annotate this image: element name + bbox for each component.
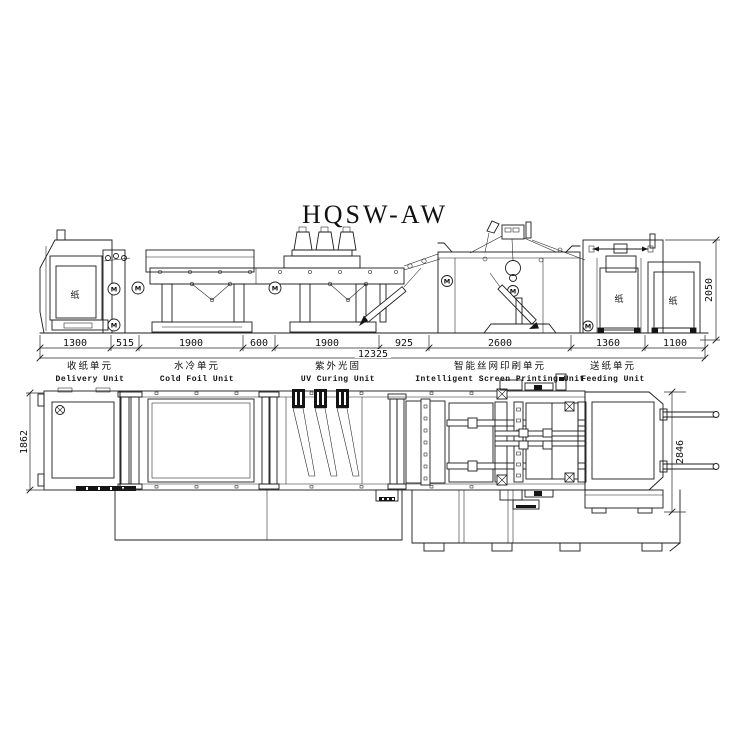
gripper-chain-rail	[388, 394, 406, 489]
motor-label: M	[135, 285, 141, 293]
motor-label: M	[111, 322, 117, 330]
unit-label-zh-cold-foil: 水冷单元	[174, 360, 220, 372]
squeegee-head	[487, 221, 499, 233]
uv-curing-unit-plan	[286, 389, 362, 484]
motor-label: M	[585, 323, 591, 331]
dim-515: 515	[116, 338, 134, 349]
impression-cylinder	[506, 261, 521, 276]
cold-foil-unit-plan	[148, 399, 254, 482]
feeding-unit-plan	[585, 392, 719, 513]
unit-label-en-feeding: Feeding Unit	[581, 375, 645, 384]
machine-diagram-page: HQSW-AW 纸 M M M	[0, 0, 750, 750]
delivery-unit-side: 纸 M M	[40, 230, 130, 333]
uv-lamp-cartridge	[336, 389, 349, 408]
unit-label-zh-printing: 智能丝网印刷单元	[454, 360, 546, 372]
feeder-frame	[583, 240, 663, 333]
dim-height: 2050	[704, 278, 715, 302]
motor-label: M	[272, 285, 278, 293]
paper-glyph: 纸	[70, 289, 79, 301]
gripper-chain-rail	[118, 392, 142, 489]
uv-lamp-cartridge	[292, 389, 305, 408]
unit-label-zh-delivery: 收纸单元	[67, 360, 113, 372]
dim-1360: 1360	[596, 338, 620, 349]
screen-printing-unit-plan	[447, 374, 586, 509]
support-strut	[364, 287, 406, 323]
gripper-chain-rail	[259, 392, 279, 489]
dim-600: 600	[250, 338, 268, 349]
unit-label-zh-feeding: 送纸单元	[590, 360, 636, 372]
chimney	[57, 230, 65, 240]
dim-plan-right: 2846	[675, 440, 686, 464]
paper-glyph: 纸	[614, 293, 623, 305]
dim-1100: 1100	[663, 338, 687, 349]
conveyor-table	[150, 268, 404, 284]
lower-platforms	[115, 490, 680, 551]
rail-end-cap	[713, 412, 719, 418]
dim-1900b: 1900	[315, 338, 339, 349]
uv-lamp	[316, 232, 334, 250]
uv-lamp	[338, 232, 356, 250]
plan-view: 1862 2846	[19, 374, 719, 551]
perforated-plate	[592, 402, 654, 479]
page-title: HQSW-AW	[302, 200, 448, 229]
unit-label-zh-uv: 紫外光固	[315, 360, 361, 372]
dim-1300: 1300	[63, 338, 87, 349]
cold-foil-housing	[146, 250, 254, 272]
unit-label-en-uv: UV Curing Unit	[301, 375, 375, 384]
feeding-unit-side: 纸 纸 M	[583, 234, 700, 333]
unit-label-en-cold-foil: Cold Foil Unit	[160, 375, 234, 384]
elevation-view: 纸 M M M M	[40, 221, 708, 333]
dim-925: 925	[395, 338, 413, 349]
screen-printing-unit-side: M M	[438, 221, 585, 333]
uv-curing-unit-side: M	[269, 227, 440, 332]
motor-label: M	[111, 286, 117, 294]
rail-end-cap	[713, 464, 719, 470]
dim-2600: 2600	[488, 338, 512, 349]
machine-diagram: HQSW-AW 纸 M M M	[0, 0, 750, 750]
paper-glyph: 纸	[668, 295, 677, 307]
uv-lamp-cartridge	[314, 389, 327, 408]
dim-1900a: 1900	[179, 338, 203, 349]
motor-label: M	[444, 278, 450, 286]
uv-lamp	[294, 232, 312, 250]
dim-plan-left: 1862	[19, 430, 30, 454]
unit-label-en-delivery: Delivery Unit	[56, 375, 125, 384]
dim-total: 12325	[358, 349, 388, 360]
roller-conveyor-plan	[406, 399, 493, 485]
